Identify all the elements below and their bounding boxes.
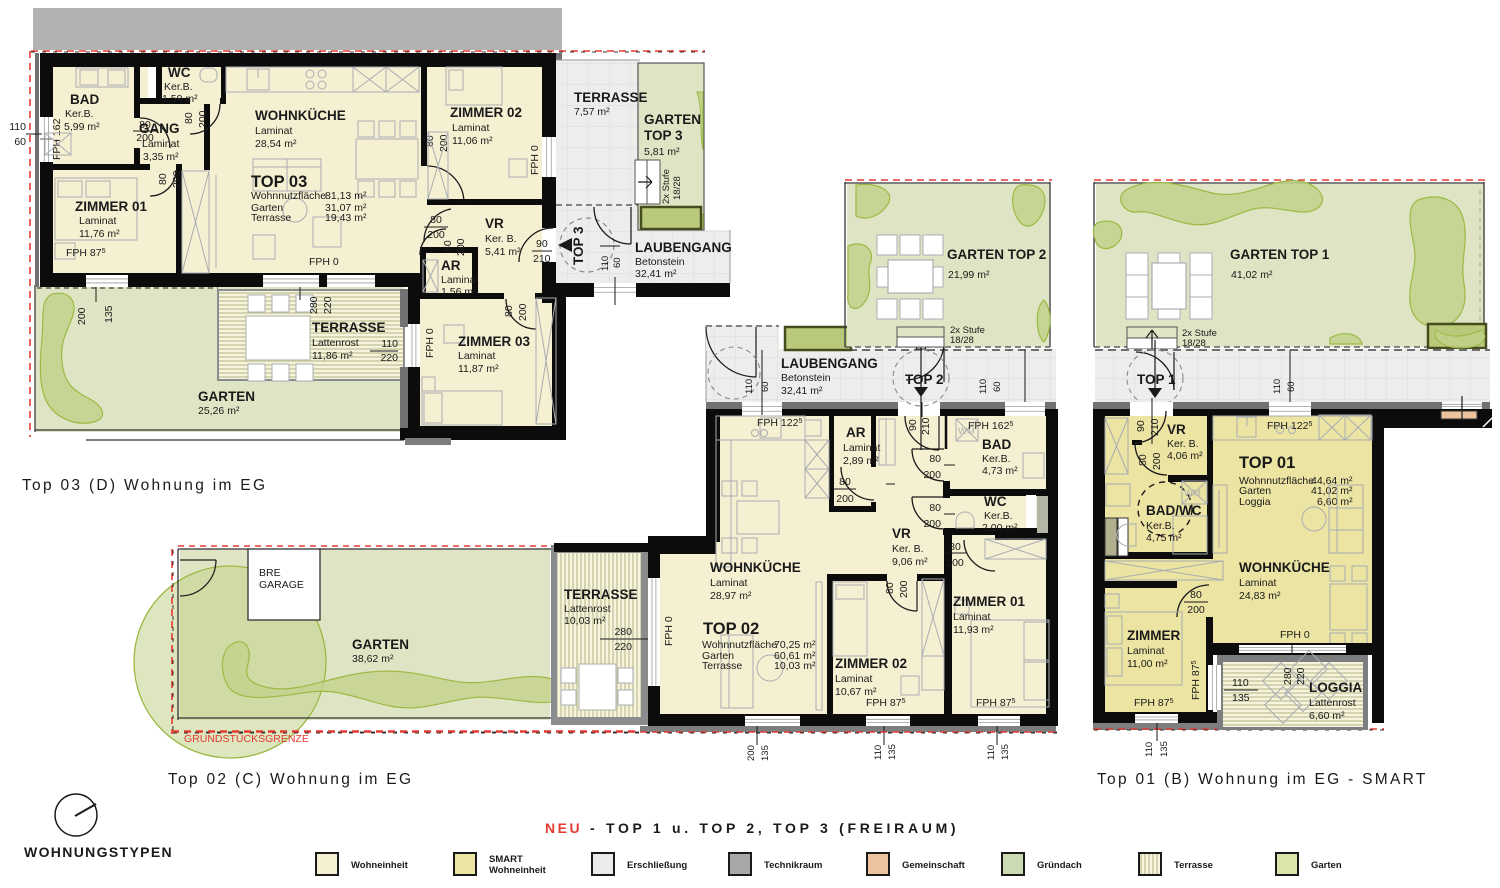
svg-text:210: 210	[920, 417, 932, 435]
svg-text:80: 80	[183, 112, 195, 124]
svg-text:Laminat: Laminat	[835, 673, 872, 685]
svg-text:220: 220	[1295, 667, 1307, 685]
svg-text:6,60 m²: 6,60 m²	[1317, 496, 1353, 508]
svg-text:GARAGE: GARAGE	[259, 579, 304, 591]
svg-text:LOGGIA: LOGGIA	[1309, 680, 1362, 695]
svg-text:60: 60	[14, 136, 26, 148]
svg-text:FPH 0: FPH 0	[1280, 629, 1310, 641]
svg-text:10,03 m²: 10,03 m²	[774, 660, 816, 672]
svg-text:Wohnnutzfläche: Wohnnutzfläche	[251, 190, 326, 202]
svg-text:ZIMMER 03: ZIMMER 03	[458, 334, 531, 349]
svg-text:135: 135	[760, 745, 771, 761]
svg-text:60: 60	[760, 381, 771, 392]
svg-text:FPH 1225: FPH 1225	[1267, 420, 1312, 432]
svg-text:TERRASSE: TERRASSE	[312, 320, 386, 335]
svg-text:80: 80	[949, 541, 961, 553]
svg-text:11,00 m²: 11,00 m²	[1127, 658, 1168, 670]
svg-text:110: 110	[9, 121, 26, 133]
svg-text:200: 200	[898, 580, 910, 598]
svg-text:1,59 m²: 1,59 m²	[162, 93, 198, 105]
svg-text:32,41 m²: 32,41 m²	[635, 268, 677, 280]
svg-text:ZIMMER: ZIMMER	[1127, 628, 1180, 643]
svg-text:210: 210	[533, 253, 551, 265]
svg-text:4,75 m²: 4,75 m²	[1146, 532, 1182, 544]
svg-text:11,06 m²: 11,06 m²	[452, 135, 493, 147]
svg-text:LAUBENGANG: LAUBENGANG	[635, 240, 732, 255]
svg-text:TERRASSE: TERRASSE	[574, 90, 648, 105]
svg-text:3,35 m²: 3,35 m²	[143, 151, 179, 163]
svg-text:110: 110	[873, 745, 884, 760]
svg-text:2,00 m²: 2,00 m²	[982, 522, 1018, 534]
svg-text:WOHNUNGSTYPEN: WOHNUNGSTYPEN	[24, 844, 173, 860]
svg-text:Top 01 (B) Wohnung im EG - SMA: Top 01 (B) Wohnung im EG - SMART	[1097, 771, 1428, 788]
svg-text:11,76 m²: 11,76 m²	[79, 228, 120, 240]
svg-text:FPH 1625: FPH 1625	[968, 420, 1013, 432]
svg-text:ZIMMER 02: ZIMMER 02	[835, 656, 907, 671]
svg-text:Laminat: Laminat	[142, 138, 179, 150]
svg-text:WC: WC	[168, 65, 191, 80]
svg-text:WM: WM	[1184, 488, 1201, 499]
svg-text:Laminat: Laminat	[441, 274, 478, 286]
svg-text:135: 135	[1232, 692, 1250, 704]
svg-text:FPH 875: FPH 875	[1190, 660, 1202, 700]
svg-text:GARTEN TOP 2: GARTEN TOP 2	[947, 247, 1046, 262]
svg-text:Wohneinheit: Wohneinheit	[489, 865, 547, 876]
svg-text:110: 110	[1272, 379, 1283, 394]
svg-text:90: 90	[907, 419, 919, 431]
svg-text:VR: VR	[485, 216, 504, 231]
svg-text:280: 280	[308, 296, 320, 314]
svg-text:200: 200	[836, 493, 854, 505]
svg-text:FPH 875: FPH 875	[976, 697, 1016, 709]
svg-text:200: 200	[427, 229, 445, 241]
svg-text:FPH 0: FPH 0	[663, 616, 675, 646]
svg-text:28,54 m²: 28,54 m²	[255, 138, 297, 150]
svg-text:5,81 m²: 5,81 m²	[644, 146, 680, 158]
svg-text:Ker.B.: Ker.B.	[984, 510, 1013, 522]
svg-text:Laminat: Laminat	[255, 125, 292, 137]
svg-text:210: 210	[1149, 418, 1161, 436]
svg-text:7,57 m²: 7,57 m²	[574, 106, 610, 118]
svg-text:80: 80	[929, 453, 941, 465]
svg-text:Lattenrost: Lattenrost	[312, 337, 359, 349]
svg-text:TOP 3: TOP 3	[571, 226, 586, 265]
svg-text:18/28: 18/28	[1182, 338, 1206, 349]
svg-text:Ker. B.: Ker. B.	[485, 233, 517, 245]
svg-text:Terrasse: Terrasse	[1174, 860, 1213, 871]
svg-text:220: 220	[380, 352, 398, 364]
svg-text:200: 200	[197, 110, 209, 128]
svg-text:90: 90	[1135, 420, 1147, 432]
svg-text:LAUBENGANG: LAUBENGANG	[781, 356, 878, 371]
svg-text:60: 60	[612, 257, 623, 268]
svg-text:Gemeinschaft: Gemeinschaft	[902, 860, 966, 871]
svg-text:TOP 01: TOP 01	[1239, 454, 1295, 472]
svg-text:18/28: 18/28	[950, 335, 974, 346]
svg-text:4,73 m²: 4,73 m²	[982, 465, 1018, 477]
svg-text:Betonstein: Betonstein	[781, 372, 831, 384]
svg-text:21,99 m²: 21,99 m²	[948, 269, 990, 281]
svg-text:110: 110	[978, 379, 989, 394]
svg-text:FPH 0: FPH 0	[424, 328, 436, 358]
svg-text:GARTEN: GARTEN	[644, 112, 701, 127]
svg-text:AR: AR	[846, 425, 866, 440]
svg-text:FPH 875: FPH 875	[1134, 697, 1174, 709]
svg-text:200: 200	[171, 170, 183, 188]
svg-text:VR: VR	[1167, 422, 1186, 437]
svg-text:Top 03 (D) Wohnung im EG: Top 03 (D) Wohnung im EG	[22, 477, 267, 494]
svg-text:80: 80	[1190, 589, 1202, 601]
svg-text:81,13 m²: 81,13 m²	[325, 190, 367, 202]
svg-text:25,26 m²: 25,26 m²	[198, 405, 240, 417]
svg-text:Ker. B.: Ker. B.	[1167, 438, 1199, 450]
svg-text:135: 135	[103, 305, 115, 323]
svg-text:Laminat: Laminat	[953, 611, 990, 623]
svg-text:110: 110	[744, 379, 755, 394]
svg-text:5,41 m²: 5,41 m²	[485, 246, 521, 258]
svg-text:GANG: GANG	[139, 121, 180, 136]
svg-text:11,86 m²: 11,86 m²	[312, 350, 353, 362]
svg-text:4,06 m²: 4,06 m²	[1167, 450, 1203, 462]
svg-text:135: 135	[1159, 741, 1170, 757]
svg-text:Terrasse: Terrasse	[251, 212, 291, 224]
svg-text:18/28: 18/28	[672, 176, 683, 200]
svg-text:Wohneinheit: Wohneinheit	[351, 860, 409, 871]
svg-text:135: 135	[887, 744, 898, 760]
svg-text:Ker.B.: Ker.B.	[65, 108, 94, 120]
svg-text:FPH 875: FPH 875	[866, 697, 906, 709]
svg-text:WC: WC	[984, 494, 1007, 509]
svg-text:220: 220	[614, 641, 632, 653]
svg-text:110: 110	[600, 256, 611, 271]
svg-text:80: 80	[839, 476, 851, 488]
svg-text:80: 80	[442, 240, 454, 252]
svg-text:Terrasse: Terrasse	[702, 660, 742, 672]
svg-text:BAD/WC: BAD/WC	[1146, 503, 1202, 518]
svg-text:80: 80	[430, 214, 442, 226]
svg-text:60: 60	[992, 381, 1003, 392]
svg-text:24,83 m²: 24,83 m²	[1239, 590, 1281, 602]
svg-text:38,62 m²: 38,62 m²	[352, 653, 394, 665]
svg-text:5,99 m²: 5,99 m²	[64, 121, 100, 133]
svg-text:1,56 m²: 1,56 m²	[441, 286, 477, 298]
svg-text:ZIMMER 01: ZIMMER 01	[953, 594, 1026, 609]
svg-text:BAD: BAD	[70, 92, 99, 107]
svg-text:11,87 m²: 11,87 m²	[458, 363, 499, 375]
svg-text:280: 280	[614, 626, 632, 638]
svg-text:TOP 1: TOP 1	[1137, 372, 1176, 387]
svg-text:FPH 875: FPH 875	[66, 247, 106, 259]
svg-text:80: 80	[503, 305, 515, 317]
svg-text:GRUNDSTÜCKSGRENZE: GRUNDSTÜCKSGRENZE	[184, 733, 309, 745]
svg-text:GARTEN TOP 1: GARTEN TOP 1	[1230, 247, 1330, 262]
svg-text:Top 02 (C) Wohnung im EG: Top 02 (C) Wohnung im EG	[168, 771, 413, 788]
svg-text:80: 80	[929, 502, 941, 514]
svg-text:110: 110	[986, 745, 997, 760]
svg-text:28,97 m²: 28,97 m²	[710, 590, 752, 602]
svg-text:Ker. B.: Ker. B.	[892, 543, 924, 555]
svg-text:Lattenrost: Lattenrost	[1309, 697, 1356, 709]
svg-text:Laminat: Laminat	[1239, 577, 1276, 589]
svg-text:110: 110	[1232, 677, 1249, 689]
svg-text:280: 280	[1282, 667, 1294, 685]
svg-text:2,89 m²: 2,89 m²	[843, 455, 879, 467]
svg-text:Ker.B.: Ker.B.	[982, 453, 1011, 465]
svg-text:GARTEN: GARTEN	[352, 637, 409, 652]
svg-text:200: 200	[517, 303, 529, 321]
svg-text:WOHNKÜCHE: WOHNKÜCHE	[255, 108, 346, 123]
svg-text:WOHNKÜCHE: WOHNKÜCHE	[710, 560, 801, 575]
svg-text:Loggia: Loggia	[1239, 496, 1271, 508]
svg-text:WOHNKÜCHE: WOHNKÜCHE	[1239, 560, 1330, 575]
svg-text:200: 200	[946, 557, 964, 569]
svg-text:NEU: NEU	[545, 820, 582, 836]
svg-text:Betonstein: Betonstein	[635, 256, 685, 268]
svg-text:VR: VR	[892, 526, 911, 541]
svg-text:200: 200	[923, 518, 941, 530]
svg-text:110: 110	[1144, 742, 1155, 757]
svg-text:Laminat: Laminat	[843, 442, 880, 454]
svg-text:80: 80	[157, 173, 169, 185]
svg-text:220: 220	[322, 296, 334, 314]
svg-text:135: 135	[1000, 744, 1011, 760]
svg-text:FPH 0: FPH 0	[529, 145, 541, 175]
svg-text:11,93 m²: 11,93 m²	[953, 624, 994, 636]
svg-text:TOP 03: TOP 03	[251, 173, 307, 191]
svg-text:200: 200	[923, 469, 941, 481]
svg-text:BAD: BAD	[982, 437, 1011, 452]
svg-text:Garten: Garten	[1311, 860, 1342, 871]
svg-text:ZIMMER 01: ZIMMER 01	[75, 199, 148, 214]
svg-text:200: 200	[455, 238, 467, 256]
svg-text:32,41 m²: 32,41 m²	[781, 385, 823, 397]
svg-text:200: 200	[1151, 452, 1163, 470]
svg-text:ZIMMER 02: ZIMMER 02	[450, 105, 522, 120]
svg-text:200: 200	[76, 307, 88, 325]
svg-text:200: 200	[1187, 604, 1205, 616]
svg-text:10,03 m²: 10,03 m²	[564, 615, 606, 627]
svg-text:Erschließung: Erschließung	[627, 860, 687, 871]
svg-text:Gründach: Gründach	[1037, 860, 1082, 871]
svg-text:FPH 0: FPH 0	[309, 256, 339, 268]
svg-text:80: 80	[1137, 454, 1149, 466]
svg-text:90: 90	[536, 238, 548, 250]
svg-text:19,43 m²: 19,43 m²	[325, 212, 367, 224]
svg-text:Lattenrost: Lattenrost	[564, 603, 611, 615]
svg-text:Laminat: Laminat	[1127, 645, 1164, 657]
svg-text:110: 110	[381, 338, 398, 350]
svg-text:- TOP 1 u. TOP 2, TOP 3 (FREIR: - TOP 1 u. TOP 2, TOP 3 (FREIRAUM)	[590, 820, 959, 836]
svg-text:AR: AR	[441, 258, 461, 273]
svg-text:Laminat: Laminat	[452, 122, 489, 134]
svg-text:TOP 2: TOP 2	[905, 372, 944, 387]
svg-text:Laminat: Laminat	[710, 577, 747, 589]
svg-text:BRE: BRE	[259, 567, 281, 579]
svg-text:Laminat: Laminat	[79, 215, 116, 227]
svg-text:Ker.B.: Ker.B.	[1146, 520, 1175, 532]
svg-text:TOP 02: TOP 02	[703, 620, 759, 638]
svg-text:GARTEN: GARTEN	[198, 389, 255, 404]
svg-text:200: 200	[746, 745, 757, 761]
svg-text:80: 80	[884, 582, 896, 594]
svg-text:Laminat: Laminat	[458, 350, 495, 362]
svg-text:Ker.B.: Ker.B.	[164, 81, 193, 93]
svg-text:9,06 m²: 9,06 m²	[892, 556, 928, 568]
svg-text:TOP 3: TOP 3	[644, 128, 683, 143]
svg-text:60: 60	[1286, 381, 1297, 392]
svg-text:FPH 1225: FPH 1225	[757, 417, 802, 429]
svg-text:Technikraum: Technikraum	[764, 860, 822, 871]
svg-text:TERRASSE: TERRASSE	[564, 587, 638, 602]
svg-text:SMART: SMART	[489, 854, 523, 865]
svg-text:41,02 m²: 41,02 m²	[1231, 269, 1273, 281]
svg-text:2x Stufe: 2x Stufe	[661, 169, 672, 204]
svg-text:80: 80	[424, 135, 436, 147]
svg-text:6,60 m²: 6,60 m²	[1309, 710, 1345, 722]
